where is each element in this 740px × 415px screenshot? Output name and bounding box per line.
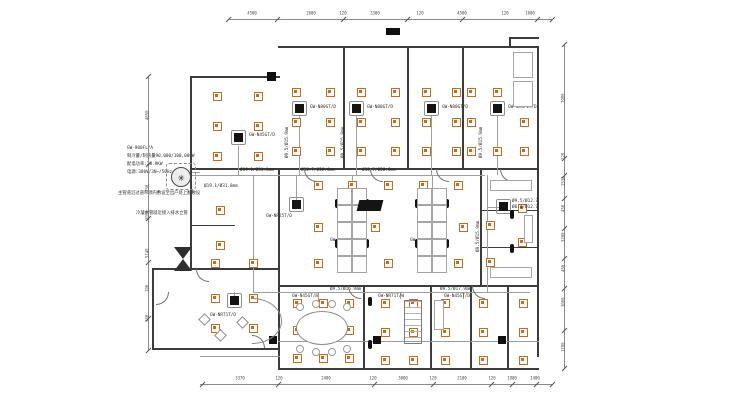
workstation-cluster — [432, 256, 447, 273]
dimension-tick — [550, 17, 556, 23]
refrigerant-pipe — [238, 146, 239, 175]
ceiling-diffuser — [459, 223, 468, 232]
floor-plan: GW-900FL/A 制冷量/制热量90,000/100,000W 配电功率:2… — [0, 0, 740, 415]
ceiling-diffuser — [452, 147, 461, 156]
dimension-label: 120 — [501, 12, 508, 16]
wall — [190, 225, 235, 226]
pipe-size-label: Ø9.5/Ø15.9mm — [341, 127, 346, 158]
ceiling-diffuser — [467, 118, 476, 127]
dimension-label: 2600 — [306, 12, 316, 16]
ceiling-diffuser — [520, 147, 529, 156]
column — [267, 72, 276, 81]
ceiling-diffuser — [441, 356, 450, 365]
ceiling-diffuser — [326, 118, 335, 127]
dimension-label: 1530 — [562, 176, 566, 186]
ceiling-diffuser — [520, 118, 529, 127]
dimension-label: 450 — [562, 265, 566, 272]
ceiling-diffuser — [381, 356, 390, 365]
ceiling-diffuser — [454, 259, 463, 268]
dimension-label: 3370 — [235, 377, 245, 381]
ceiling-diffuser — [467, 147, 476, 156]
unit-label: GW-N45GT/D — [444, 294, 470, 299]
stair-symbol — [174, 247, 192, 259]
chair — [368, 297, 372, 306]
ceiling-diffuser — [213, 122, 222, 131]
pipe-size-label: Ø19.1/Ø31.8mm — [204, 184, 238, 189]
wall — [509, 37, 539, 39]
workstation-cluster — [337, 188, 352, 205]
wall — [278, 368, 539, 370]
cassette-indoor-unit — [227, 293, 242, 308]
ceiling-diffuser — [519, 356, 528, 365]
elevator — [513, 52, 533, 78]
dimension-label: 530 — [146, 315, 150, 322]
pipe-size-label: Ø9.5/Ø15.9mm — [476, 221, 481, 252]
chair — [510, 210, 514, 219]
desk — [490, 267, 532, 278]
ceiling-diffuser — [293, 354, 302, 363]
cassette-indoor-unit — [496, 199, 511, 214]
ceiling-diffuser — [381, 328, 390, 337]
desk — [524, 215, 533, 243]
dimension-label: 120 — [488, 377, 495, 381]
unit-label: GW-N80GT/D — [367, 105, 393, 110]
ceiling-diffuser — [493, 147, 502, 156]
chair — [296, 345, 304, 353]
workstation-cluster — [417, 205, 432, 222]
chair — [368, 340, 372, 349]
ceiling-diffuser — [249, 259, 258, 268]
ceiling-diffuser — [479, 328, 488, 337]
ceiling-diffuser — [357, 118, 366, 127]
dimension-label: 120 — [416, 12, 423, 16]
ceiling-diffuser — [292, 88, 301, 97]
wall — [470, 285, 472, 368]
ceiling-diffuser — [254, 122, 263, 131]
wall — [430, 285, 432, 368]
ceiling-diffuser — [213, 152, 222, 161]
ceiling-diffuser — [384, 181, 393, 190]
ceiling-diffuser — [391, 88, 400, 97]
dimension-label: 120 — [339, 12, 346, 16]
ceiling-diffuser — [384, 259, 393, 268]
ceiling-diffuser — [326, 147, 335, 156]
door-arc — [348, 286, 361, 299]
cassette-indoor-unit — [292, 101, 307, 116]
refrigerant-pipe — [431, 115, 432, 175]
desk — [434, 300, 444, 330]
dimension-label: 120 — [275, 377, 282, 381]
workstation-cluster — [432, 205, 447, 222]
workstation-cluster — [432, 239, 447, 256]
dimension-label: 2100 — [457, 377, 467, 381]
shelf — [404, 300, 422, 344]
unit-label: GW-N80GT/D — [442, 105, 468, 110]
workstation-cluster — [417, 239, 432, 256]
dimension-label: 4650 — [146, 110, 150, 120]
ceiling-diffuser — [326, 88, 335, 97]
pipe-routing-note: 主管道沿过道吊顶内敷设至出户处上翻敷设 — [118, 191, 200, 195]
ceiling-diffuser — [216, 206, 225, 215]
cassette-indoor-unit — [289, 197, 304, 212]
pipe-size-label: Ø9.5/Ø12.7 — [512, 199, 538, 204]
chair — [312, 348, 320, 356]
dimension-label: 4500 — [457, 12, 467, 16]
dimension-label: 120 — [369, 377, 376, 381]
dimension-label: 190 — [146, 285, 150, 292]
elevator — [513, 81, 533, 107]
wall-light — [200, 356, 280, 357]
dimension-label: 1700 — [562, 342, 566, 352]
wall — [278, 46, 539, 48]
dimension-label: 7900 — [562, 93, 566, 103]
dimension-label: 2016 — [146, 210, 150, 220]
workstation-cluster — [417, 222, 432, 239]
dimension-label: 1400 — [530, 377, 540, 381]
door-arc — [472, 286, 485, 299]
chair — [343, 303, 351, 311]
chair — [296, 303, 304, 311]
workstation-cluster — [352, 239, 367, 256]
ceiling-diffuser — [319, 354, 328, 363]
ceiling-diffuser — [357, 88, 366, 97]
dimension-label: 3000 — [398, 377, 408, 381]
outdoor-unit-pad — [166, 163, 196, 190]
ceiling-diffuser — [479, 299, 488, 308]
unit-label: GW-NR25T/D — [266, 214, 292, 219]
dimension-label: 750 — [146, 185, 150, 192]
ceiling-diffuser — [493, 88, 502, 97]
ceiling-diffuser — [422, 118, 431, 127]
chair — [510, 244, 514, 253]
cassette-indoor-unit — [424, 101, 439, 116]
chair — [343, 345, 351, 353]
unit-label: GW-N80GT/D — [310, 105, 336, 110]
chair — [328, 348, 336, 356]
wall — [278, 285, 539, 287]
ceiling-diffuser — [314, 181, 323, 190]
ceiling-diffuser — [211, 259, 220, 268]
ceiling-diffuser — [422, 88, 431, 97]
plant — [236, 316, 249, 329]
workstation-cluster — [352, 256, 367, 273]
dimension-label: 4500 — [247, 12, 257, 16]
dimension-line — [200, 384, 552, 385]
unit-label: GW-N45GT/B — [292, 294, 318, 299]
column — [498, 336, 506, 344]
projector-screen — [357, 200, 384, 211]
wall — [509, 37, 511, 47]
spec-model: GW-900FL/A — [127, 146, 153, 150]
workstation-cluster — [337, 222, 352, 239]
dimension-label: 120 — [562, 153, 566, 160]
ceiling-diffuser — [254, 152, 263, 161]
pipe-size-label: Ø9.5/Ø15.9mm — [479, 127, 484, 158]
refrigerant-pipe — [497, 115, 498, 175]
ceiling-diffuser — [454, 181, 463, 190]
wall — [152, 348, 280, 350]
dimension-label: 5140 — [146, 248, 150, 258]
ceiling-diffuser — [452, 118, 461, 127]
refrigerant-pipe — [487, 175, 488, 292]
refrigerant-pipe — [253, 175, 254, 293]
cassette-indoor-unit — [231, 130, 246, 145]
dimension-label: 2400 — [321, 377, 331, 381]
ceiling-diffuser — [486, 258, 495, 267]
condensate-drain-note: 冷凝水管就近接入排水立管 — [136, 211, 188, 215]
ceiling-diffuser — [319, 299, 328, 308]
wall — [152, 268, 154, 350]
door-arc — [370, 169, 383, 182]
ceiling-diffuser — [486, 221, 495, 230]
ceiling-diffuser — [371, 223, 380, 232]
ceiling-diffuser — [292, 147, 301, 156]
ceiling-diffuser — [452, 88, 461, 97]
wall — [407, 47, 409, 168]
dimension-label: 1900 — [507, 377, 517, 381]
pipe-size-label: Ø6.4/Ø12.7 — [512, 205, 538, 210]
chair — [312, 300, 320, 308]
ceiling-diffuser — [211, 294, 220, 303]
ceiling-diffuser — [254, 92, 263, 101]
ceiling-diffuser — [391, 118, 400, 127]
dimension-label: 450 — [562, 205, 566, 212]
door-arc — [304, 169, 317, 182]
ceiling-diffuser — [391, 147, 400, 156]
cassette-indoor-unit — [490, 101, 505, 116]
desk — [490, 180, 532, 191]
workstation-cluster — [417, 188, 432, 205]
ceiling-diffuser — [292, 118, 301, 127]
workstation-cluster — [337, 239, 352, 256]
dimension-label: 3200 — [562, 232, 566, 242]
ceiling-diffuser — [422, 147, 431, 156]
wall — [363, 285, 365, 368]
unit-label: GW-N45GT/D — [249, 133, 275, 138]
ceiling-diffuser — [467, 88, 476, 97]
ceiling-diffuser — [345, 354, 354, 363]
dimension-tick — [146, 348, 152, 354]
ceiling-diffuser — [519, 299, 528, 308]
ceiling-diffuser — [213, 92, 222, 101]
workstation-cluster — [352, 222, 367, 239]
ceiling-diffuser — [314, 259, 323, 268]
workstation-cluster — [432, 222, 447, 239]
dimension-label: 3000 — [562, 297, 566, 307]
pipe-size-label: Ø9.5/Ø17.9mm — [440, 287, 471, 292]
chair — [328, 300, 336, 308]
column — [373, 336, 381, 344]
dimension-tick — [562, 366, 568, 372]
ceiling-diffuser — [519, 328, 528, 337]
ceiling-diffuser — [409, 356, 418, 365]
workstation-cluster — [417, 256, 432, 273]
wall — [507, 285, 509, 368]
ceiling-diffuser — [357, 147, 366, 156]
pipe-size-label: Ø9.5/Ø15.9mm — [285, 127, 290, 158]
workstation-cluster — [337, 256, 352, 273]
ceiling-diffuser — [381, 299, 390, 308]
ceiling-diffuser — [216, 241, 225, 250]
cassette-indoor-unit — [349, 101, 364, 116]
dimension-tick — [550, 382, 556, 388]
dimension-label: 1600 — [525, 12, 535, 16]
door-arc — [436, 169, 449, 182]
spec-capacity: 制冷量/制热量90,000/100,000W — [127, 154, 195, 158]
ceiling-diffuser — [314, 223, 323, 232]
column — [386, 28, 400, 35]
dimension-label: 3300 — [370, 12, 380, 16]
unit-label: GW-NR71T/D — [210, 313, 236, 318]
workstation-cluster — [432, 188, 447, 205]
ceiling-diffuser — [479, 356, 488, 365]
pipe-size-label: Ø19.1/Ø31.8mm — [240, 168, 274, 173]
door-arc — [196, 269, 209, 282]
plant — [198, 313, 211, 326]
dimension-label: 120 — [429, 377, 436, 381]
conference-table — [296, 311, 348, 345]
door-arc — [156, 292, 169, 305]
workstation-cluster — [337, 205, 352, 222]
wall — [480, 247, 537, 248]
stair-symbol — [174, 259, 192, 271]
unit-label: GW-NR71T/W — [378, 294, 404, 299]
